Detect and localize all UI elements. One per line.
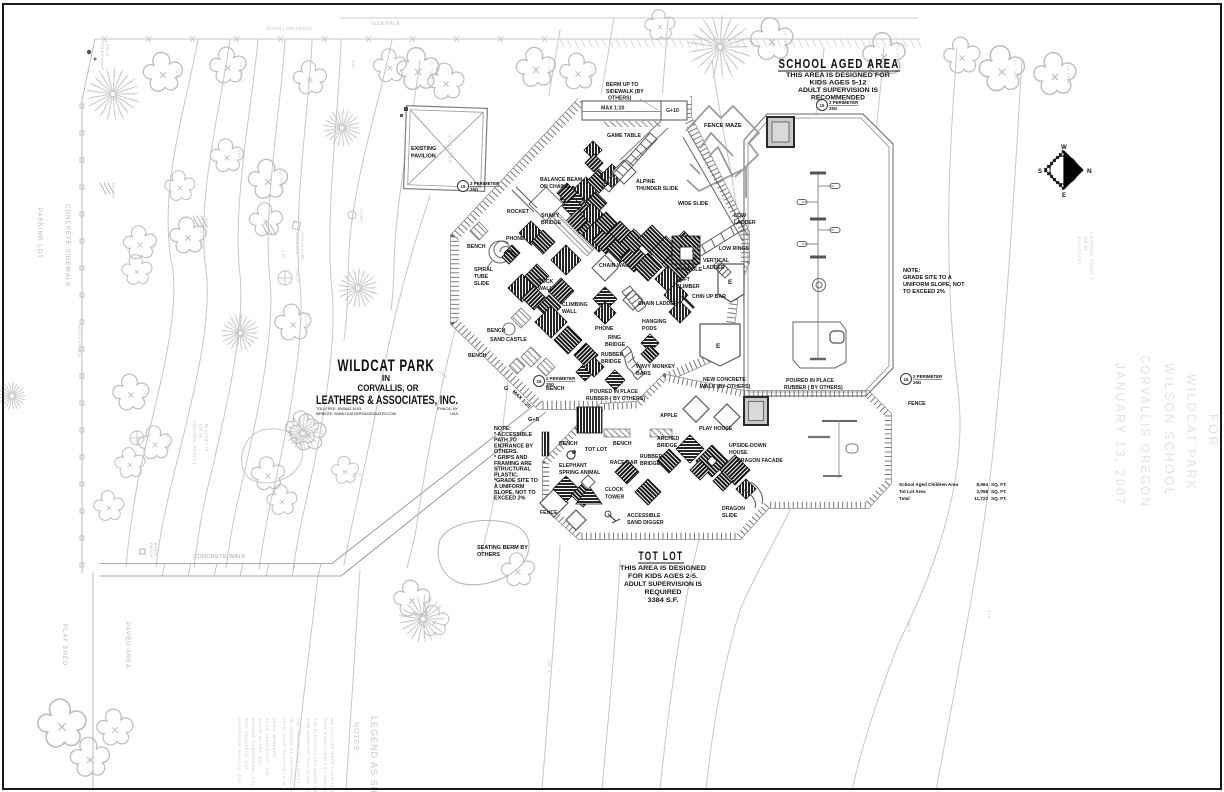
- svg-text:THIS AREA IS DESIGNED FOR: THIS AREA IS DESIGNED FOR: [786, 72, 890, 79]
- svg-text:14' TREE: 14' TREE: [279, 170, 283, 190]
- svg-text:STRUCTURE: STRUCTURE: [300, 232, 305, 261]
- svg-text:ADULT SUPERVISION IS: ADULT SUPERVISION IS: [624, 581, 703, 588]
- svg-text:POLE: POLE: [105, 44, 110, 57]
- svg-text:14' TREE: 14' TREE: [429, 60, 433, 80]
- svg-text:CONTROL POINT 1: CONTROL POINT 1: [192, 420, 197, 465]
- svg-text:RUBBER: RUBBER: [640, 454, 662, 460]
- svg-text:SPIRAL: SPIRAL: [474, 267, 494, 273]
- svg-text:WEBSITE: WWW.LEATHERSASSOCIATE: WEBSITE: WWW.LEATHERSASSOCIATES.COM: [316, 412, 396, 416]
- svg-text:ARCHED: ARCHED: [657, 436, 679, 442]
- svg-text:SLIDE: SLIDE: [722, 513, 738, 519]
- svg-text:BENCH: BENCH: [468, 353, 487, 359]
- svg-text:SQ. FT.: SQ. FT.: [991, 489, 1007, 494]
- svg-text:BARS: BARS: [636, 371, 651, 377]
- svg-text:BERM UP TO: BERM UP TO: [606, 82, 638, 88]
- svg-text:ROCK: ROCK: [538, 279, 554, 285]
- svg-text:THIS AREA IS DESIGNED: THIS AREA IS DESIGNED: [620, 565, 706, 572]
- svg-text:239: 239: [237, 150, 242, 158]
- svg-text:DRAGON: DRAGON: [722, 506, 745, 512]
- svg-text:SHAKY: SHAKY: [541, 213, 560, 219]
- svg-text:LADDER: LADDER: [734, 220, 756, 226]
- svg-text:244: 244: [987, 610, 992, 618]
- svg-text:RECOMMENDED: RECOMMENDED: [811, 95, 865, 102]
- svg-text:E: E: [1062, 193, 1066, 199]
- svg-text:14' TREE: 14' TREE: [151, 232, 155, 252]
- svg-text:EXCEED 2%: EXCEED 2%: [494, 496, 526, 502]
- svg-text:SOFT: SOFT: [676, 277, 691, 283]
- svg-text:2 PERIMETER: 2 PERIMETER: [470, 181, 500, 186]
- svg-text:NO UTILITIES WERE LOCATED EXCE: NO UTILITIES WERE LOCATED EXCEPT THOSE: [330, 718, 335, 792]
- svg-text:Total: Total: [899, 496, 910, 501]
- svg-text:TOT LOT: TOT LOT: [585, 447, 608, 453]
- svg-text:WILSON SCHOOL: WILSON SCHOOL: [1162, 363, 1177, 497]
- svg-text:S: S: [1038, 169, 1042, 175]
- svg-text:NOTE:: NOTE:: [903, 268, 921, 274]
- svg-text:JANUARY 13, 2007: JANUARY 13, 2007: [1113, 363, 1128, 506]
- svg-text:242.5: 242.5: [907, 620, 912, 633]
- svg-text:VERTICAL: VERTICAL: [703, 258, 730, 264]
- svg-text:CORVALLIS, OR: CORVALLIS, OR: [358, 383, 419, 394]
- svg-text:DRAGON FACADE: DRAGON FACADE: [737, 458, 783, 464]
- svg-text:15: 15: [820, 103, 825, 108]
- svg-text:RUBBER ( BY OTHERS): RUBBER ( BY OTHERS): [784, 385, 843, 391]
- svg-text:TABLE: TABLE: [295, 268, 299, 282]
- svg-text:SCHOOL AGED AREA: SCHOOL AGED AREA: [779, 57, 900, 71]
- svg-text:241.5: 241.5: [547, 660, 552, 673]
- svg-text:WALK (BY OTHERS): WALK (BY OTHERS): [700, 384, 751, 390]
- svg-text:TELEPHONE: TELEPHONE: [100, 42, 105, 71]
- svg-text:ANDREW SILBERNAGEL- DSL: ANDREW SILBERNAGEL- DSL: [251, 718, 256, 787]
- svg-text:14' TREE: 14' TREE: [783, 30, 787, 50]
- svg-text:PAVILION: PAVILION: [411, 154, 436, 160]
- svg-text:LEGEND AS SHOWN: LEGEND AS SHOWN: [369, 716, 379, 792]
- svg-text:WOOD FENCE: WOOD FENCE: [77, 325, 82, 358]
- svg-text:E: E: [728, 279, 733, 286]
- svg-text:15: 15: [904, 377, 909, 382]
- svg-text:BENCH: BENCH: [559, 441, 578, 447]
- svg-text:15: 15: [461, 184, 466, 189]
- svg-text:ALPINE: ALPINE: [636, 179, 656, 185]
- svg-text:14' TREE: 14' TREE: [589, 62, 593, 82]
- svg-text:RUBBER: RUBBER: [601, 352, 623, 358]
- svg-text:G+10: G+10: [666, 108, 679, 114]
- svg-text:BASIN: BASIN: [154, 543, 158, 556]
- svg-text:Tot Lot Area: Tot Lot Area: [899, 489, 926, 494]
- svg-text:N: N: [1087, 168, 1092, 175]
- svg-text:IN: IN: [382, 374, 390, 383]
- svg-text:MAX 1:20: MAX 1:20: [601, 106, 624, 112]
- svg-text:OTHERS): OTHERS): [608, 96, 632, 102]
- svg-text:BENCH: BENCH: [467, 244, 486, 250]
- svg-text:PARKING LOT: PARKING LOT: [36, 208, 42, 259]
- svg-text:BALANCE BEAM: BALANCE BEAM: [540, 177, 582, 183]
- svg-text:NEW CONCRETE: NEW CONCRETE: [703, 377, 746, 383]
- svg-text:2 PERIMETER: 2 PERIMETER: [546, 376, 576, 381]
- svg-text:CONCRETE SIDEWALK: CONCRETE SIDEWALK: [64, 204, 70, 287]
- svg-text:THAT WERE VISIBLE AT GROUND LE: THAT WERE VISIBLE AT GROUND LEVEL: [323, 718, 328, 792]
- svg-text:CHAIN LINK FENCE: CHAIN LINK FENCE: [266, 26, 313, 31]
- svg-text:CHAIN LADDER: CHAIN LADDER: [638, 301, 678, 307]
- svg-text:WAVY MONKEY: WAVY MONKEY: [636, 364, 676, 370]
- svg-text:FENCE: FENCE: [540, 510, 558, 516]
- svg-text:FENCE: FENCE: [908, 401, 926, 407]
- svg-text:14' TREE: 14' TREE: [175, 58, 179, 78]
- svg-text:TUBE: TUBE: [474, 274, 489, 280]
- svg-text:TOT LOT: TOT LOT: [639, 549, 684, 563]
- svg-text:240: 240: [281, 250, 286, 258]
- svg-text:TOLLFREE: 800/642-5193: TOLLFREE: 800/642-5193: [316, 407, 361, 411]
- svg-text:ADULT SUPERVISION IS: ADULT SUPERVISION IS: [798, 87, 879, 94]
- svg-text:CREW MEMBERS: CREW MEMBERS: [272, 718, 277, 758]
- svg-text:ELEPHANT: ELEPHANT: [559, 463, 588, 469]
- svg-text:GARBAGE: GARBAGE: [295, 232, 300, 255]
- svg-text:STUMP: STUMP: [359, 208, 363, 224]
- svg-text:G+S: G+S: [528, 417, 539, 423]
- svg-text:3,058: 3,058: [977, 489, 989, 494]
- svg-text:14' TREE: 14' TREE: [239, 62, 243, 82]
- svg-text:25G: 25G: [913, 380, 922, 385]
- svg-text:WIDE SLIDE: WIDE SLIDE: [678, 201, 709, 207]
- svg-text:POURED IN PLACE: POURED IN PLACE: [786, 378, 834, 384]
- svg-text:14' TREE: 14' TREE: [319, 422, 323, 442]
- svg-text:PODS: PODS: [642, 326, 657, 332]
- svg-text:PROFESSOR SCHULTZ- DSL: PROFESSOR SCHULTZ- DSL: [237, 718, 242, 784]
- svg-text:14' TREE: 14' TREE: [304, 312, 308, 332]
- svg-text:THE ELEVATION ARE BASED ON CIT: THE ELEVATION ARE BASED ON CITY DATUM OF: [313, 718, 318, 792]
- svg-text:WILDCAT PARK: WILDCAT PARK: [338, 357, 435, 375]
- svg-text:UNIFORM SLOPE, NOT: UNIFORM SLOPE, NOT: [903, 282, 965, 288]
- svg-text:BENCH: BENCH: [487, 328, 506, 334]
- svg-text:THUNDER SLIDE: THUNDER SLIDE: [636, 186, 679, 192]
- svg-text:BENCH: BENCH: [111, 183, 115, 199]
- svg-text:W: W: [1061, 145, 1067, 151]
- svg-text:RING: RING: [608, 335, 621, 341]
- svg-text:PLAY HOUSE: PLAY HOUSE: [699, 426, 733, 432]
- svg-text:BRIDGE: BRIDGE: [640, 461, 661, 467]
- svg-text:FOR: FOR: [1206, 414, 1221, 448]
- svg-text:LEVEL LOOP WAS RUN TO SET CONT: LEVEL LOOP WAS RUN TO SET CONTROL: [282, 718, 287, 792]
- svg-text:CATCH: CATCH: [149, 543, 153, 557]
- svg-text:CONTROL POINT 2: CONTROL POINT 2: [1089, 232, 1094, 280]
- svg-text:GAME TABLE: GAME TABLE: [607, 133, 641, 139]
- svg-text:ON CHAINS: ON CHAINS: [540, 184, 570, 190]
- svg-text:BJORN MILLER- DSL: BJORN MILLER- DSL: [258, 718, 263, 766]
- svg-text:14' TREE: 14' TREE: [199, 228, 203, 248]
- svg-text:G: G: [504, 386, 508, 392]
- svg-text:POURED IN PLACE: POURED IN PLACE: [590, 389, 638, 395]
- svg-text:RUBBER-( BY OTHERS): RUBBER-( BY OTHERS): [586, 396, 645, 402]
- svg-text:ITHACA, NY: ITHACA, NY: [437, 407, 459, 411]
- svg-text:ADAM CASALEGNO - DSL: ADAM CASALEGNO - DSL: [265, 718, 270, 777]
- svg-text:SQ. FT.: SQ. FT.: [991, 496, 1007, 501]
- svg-text:TO EXCEED 2%: TO EXCEED 2%: [903, 289, 945, 295]
- svg-text:ELV=244.81: ELV=244.81: [1077, 236, 1082, 266]
- svg-text:HOUSE: HOUSE: [729, 450, 748, 456]
- svg-text:PAVED AREA: PAVED AREA: [124, 622, 130, 669]
- svg-text:SLIDE: SLIDE: [474, 281, 490, 287]
- svg-text:CHAIN WALL: CHAIN WALL: [599, 263, 632, 269]
- svg-text:SAND CASTLE: SAND CASTLE: [490, 337, 527, 343]
- svg-text:REQUIRED: REQUIRED: [645, 589, 682, 596]
- svg-text:14' TREE: 14' TREE: [547, 58, 551, 78]
- svg-text:PLAY SHED: PLAY SHED: [61, 624, 67, 666]
- svg-text:LEATHERS & ASSOCIATES, INC.: LEATHERS & ASSOCIATES, INC.: [316, 395, 458, 407]
- svg-text:BRIDGE: BRIDGE: [657, 443, 678, 449]
- svg-text:240: 240: [351, 60, 356, 68]
- svg-text:PHONE: PHONE: [595, 326, 614, 332]
- svg-text:GRADE SITE TO A: GRADE SITE TO A: [903, 275, 952, 281]
- svg-text:11,722: 11,722: [974, 496, 988, 501]
- svg-text:8,664: 8,664: [977, 482, 989, 487]
- svg-text:WILDCAT PARK: WILDCAT PARK: [1184, 374, 1199, 491]
- svg-text:HANGING: HANGING: [642, 319, 667, 325]
- svg-text:14' TREE: 14' TREE: [142, 382, 146, 402]
- svg-text:WALL: WALL: [538, 286, 554, 292]
- svg-text:TABLE: TABLE: [147, 428, 151, 442]
- svg-text:CLIMBER: CLIMBER: [676, 284, 700, 290]
- svg-text:CHIN UP BAR: CHIN UP BAR: [692, 294, 726, 300]
- svg-text:BRIDGE: BRIDGE: [605, 342, 626, 348]
- svg-text:25G: 25G: [829, 106, 838, 111]
- svg-text:RACE CAR: RACE CAR: [610, 460, 638, 466]
- svg-text:1988 HOWEVER THIS IS NOT CONFI: 1988 HOWEVER THIS IS NOT CONFIRMED: [306, 718, 311, 792]
- svg-text:ERIK HAUGERUD- DSL: ERIK HAUGERUD- DSL: [244, 718, 249, 771]
- svg-text:14' TREE: 14' TREE: [166, 432, 170, 452]
- svg-text:ACCESSIBLE: ACCESSIBLE: [627, 513, 661, 519]
- svg-text:OTHERS: OTHERS: [477, 552, 500, 558]
- svg-text:FIREPOLE: FIREPOLE: [676, 267, 702, 273]
- svg-text:E: E: [716, 343, 721, 350]
- svg-text:SPRING ANIMAL: SPRING ANIMAL: [559, 470, 601, 476]
- svg-text:25G: 25G: [470, 187, 479, 192]
- svg-text:USA: USA: [450, 412, 458, 416]
- svg-text:CONCRETE WALK: CONCRETE WALK: [193, 554, 246, 560]
- svg-text:CLIMBING: CLIMBING: [562, 302, 588, 308]
- svg-text:APPLE: APPLE: [660, 413, 678, 419]
- svg-text:SIDEWALK: SIDEWALK: [371, 21, 401, 27]
- svg-text:TOWER: TOWER: [605, 495, 624, 501]
- svg-text:25G: 25G: [546, 382, 555, 387]
- svg-text:SQ. FT.: SQ. FT.: [991, 482, 1007, 487]
- svg-text:SEATING BERM BY: SEATING BERM BY: [477, 545, 528, 551]
- svg-text:FOR KIDS AGES 2-5.: FOR KIDS AGES 2-5.: [628, 573, 698, 580]
- svg-text:ELV=237.73: ELV=237.73: [204, 424, 209, 452]
- svg-text:BRIDGE: BRIDGE: [601, 359, 622, 365]
- svg-text:5/8 IR: 5/8 IR: [198, 424, 203, 438]
- svg-text:2 PERIMETER: 2 PERIMETER: [913, 374, 943, 379]
- svg-text:14' TREE: 14' TREE: [1013, 60, 1017, 80]
- svg-text:PHONE: PHONE: [506, 236, 525, 242]
- svg-text:5/8 IR: 5/8 IR: [1083, 236, 1088, 251]
- svg-text:THE TBM FOR THIS SURVEY IS A S: THE TBM FOR THIS SURVEY IS A SPIKE IN TH…: [296, 718, 301, 792]
- svg-text:UPSIDE-DOWN: UPSIDE-DOWN: [729, 443, 767, 449]
- svg-text:CLOCK: CLOCK: [605, 487, 624, 493]
- svg-text:LOW RINGS: LOW RINGS: [719, 246, 750, 252]
- svg-text:WALL: WALL: [562, 309, 578, 315]
- svg-text:LOW: LOW: [734, 213, 746, 219]
- svg-text:NOTES:: NOTES:: [352, 722, 359, 754]
- svg-text:School Aged Children Area: School Aged Children Area: [899, 482, 959, 487]
- svg-text:BENCH: BENCH: [613, 441, 632, 447]
- svg-text:SAND DIGGER: SAND DIGGER: [627, 520, 664, 526]
- svg-text:CORVALLIS OREGON: CORVALLIS OREGON: [1138, 355, 1153, 508]
- svg-text:15: 15: [537, 379, 542, 384]
- svg-text:14' TREE: 14' TREE: [1066, 65, 1070, 85]
- svg-text:SHELTER: SHELTER: [446, 135, 452, 165]
- svg-text:3384 S.F.: 3384 S.F.: [648, 597, 679, 604]
- svg-text:FENCE MAZE: FENCE MAZE: [704, 123, 742, 129]
- svg-text:BRIDGE: BRIDGE: [541, 220, 562, 226]
- svg-text:EXISTING: EXISTING: [411, 146, 436, 152]
- svg-text:ROCKET: ROCKET: [507, 209, 530, 215]
- svg-text:KIDS AGES 5-12: KIDS AGES 5-12: [810, 80, 867, 87]
- svg-text:LADDER: LADDER: [703, 265, 725, 271]
- svg-text:SIDEWALK (BY: SIDEWALK (BY: [606, 89, 644, 95]
- svg-text:NE CORNER OF SATINWOOD ST A CL: NE CORNER OF SATINWOOD ST A CLOSED: [289, 718, 294, 792]
